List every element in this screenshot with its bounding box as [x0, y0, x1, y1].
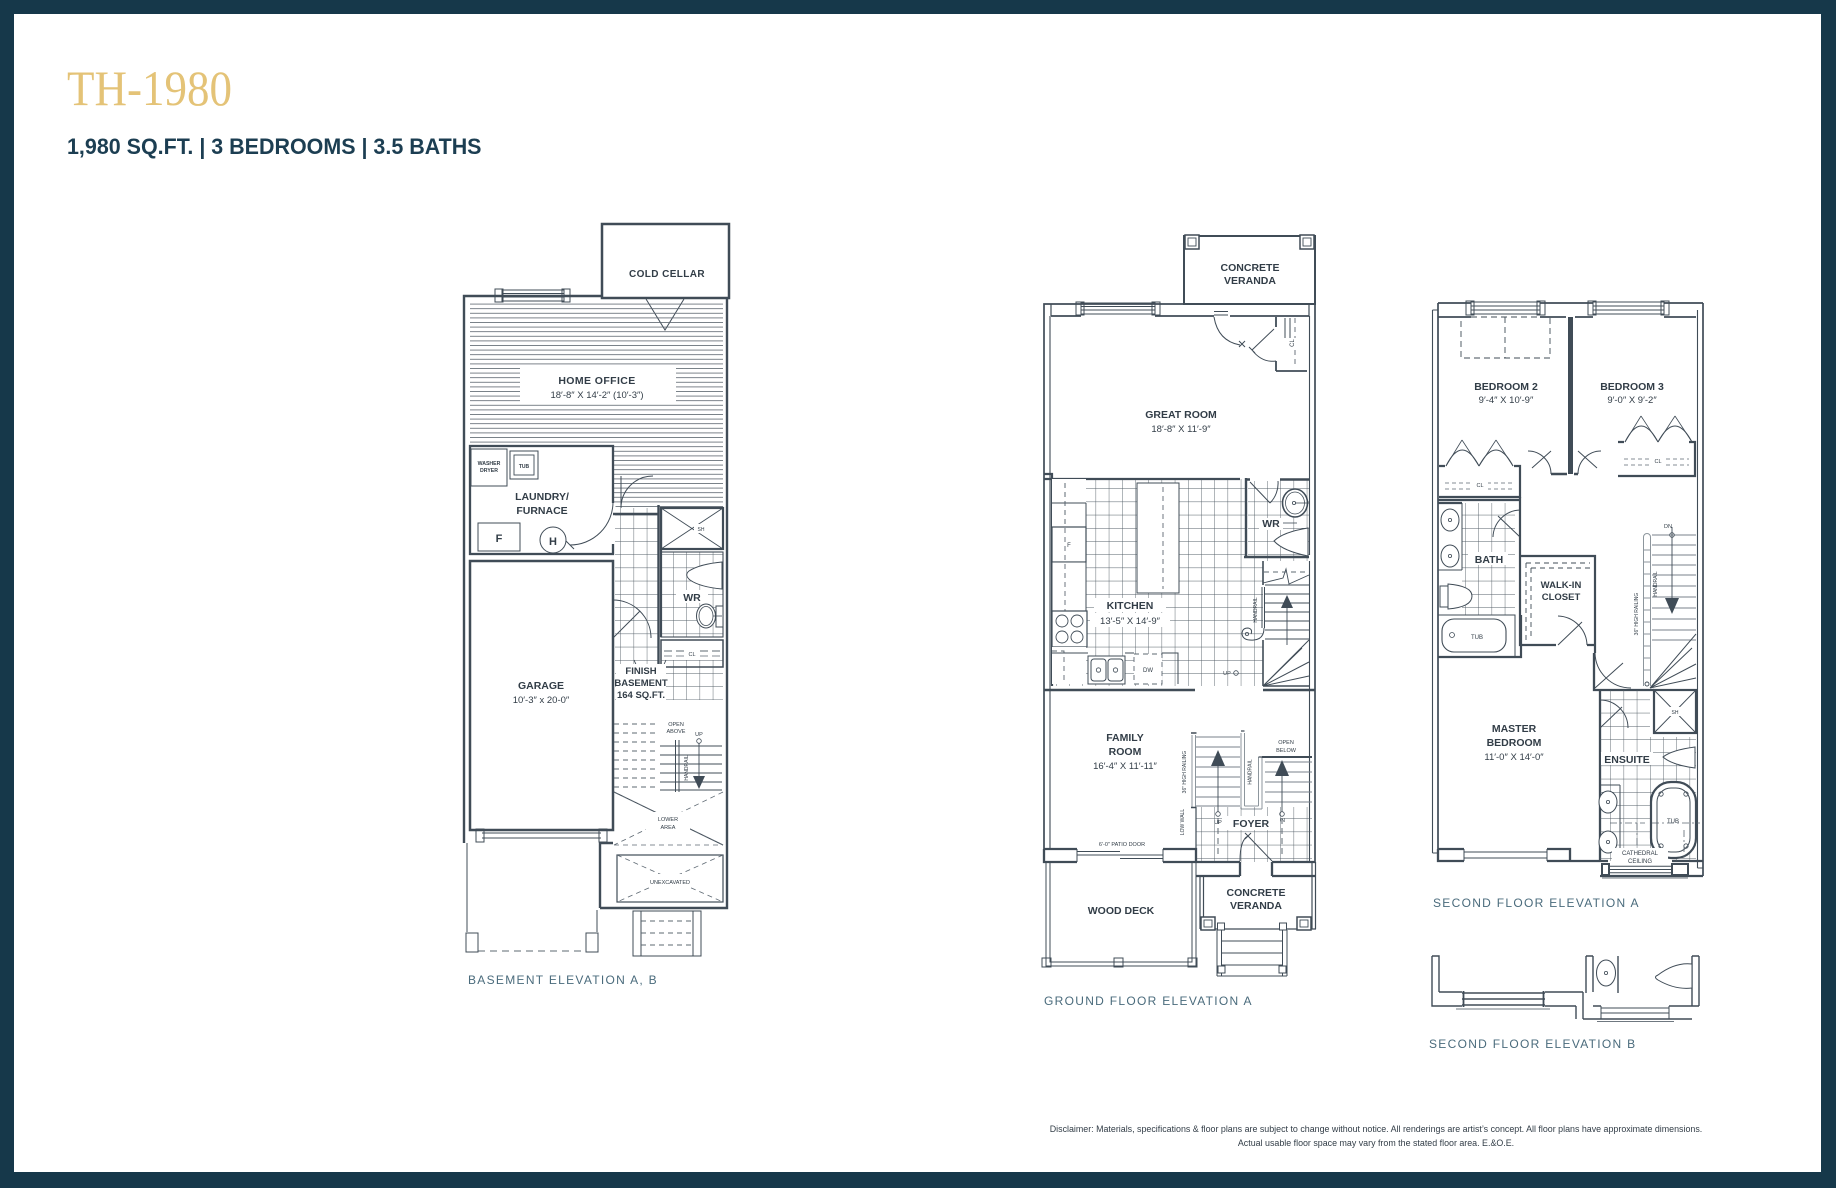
svg-text:CONCRETE: CONCRETE — [1227, 887, 1286, 899]
svg-text:H: H — [549, 536, 557, 548]
svg-text:COLD CELLAR: COLD CELLAR — [629, 269, 705, 280]
svg-text:AREA: AREA — [661, 825, 676, 831]
svg-text:10′-3″ x 20-0″: 10′-3″ x 20-0″ — [513, 695, 570, 706]
svg-text:TUB: TUB — [519, 464, 530, 470]
svg-text:WR: WR — [1262, 518, 1280, 530]
svg-text:DN: DN — [1664, 524, 1672, 530]
svg-text:FAMILY: FAMILY — [1106, 732, 1144, 744]
svg-text:F: F — [496, 533, 503, 545]
svg-text:TUB: TUB — [1471, 635, 1483, 641]
svg-text:CL: CL — [1476, 483, 1483, 489]
svg-text:13′-5″ X 14′-9″: 13′-5″ X 14′-9″ — [1100, 616, 1161, 627]
svg-text:9′-0″ X 9′-2″: 9′-0″ X 9′-2″ — [1607, 395, 1657, 406]
svg-text:BEDROOM: BEDROOM — [1487, 737, 1542, 749]
svg-text:DRYER: DRYER — [480, 468, 498, 474]
svg-text:VERANDA: VERANDA — [1230, 900, 1282, 912]
svg-text:18′-8″ X 14′-2″ (10′-3″): 18′-8″ X 14′-2″ (10′-3″) — [550, 390, 643, 401]
svg-text:HANDRAIL: HANDRAIL — [684, 755, 690, 781]
svg-text:FINISH: FINISH — [625, 666, 656, 677]
svg-text:36″ HIGH RAILING: 36″ HIGH RAILING — [1182, 751, 1188, 794]
svg-text:CL: CL — [1290, 339, 1296, 347]
svg-text:OPEN: OPEN — [1278, 740, 1294, 746]
svg-text:ROOM: ROOM — [1109, 746, 1142, 758]
svg-text:TUB: TUB — [1667, 819, 1679, 825]
svg-text:WALK-IN: WALK-IN — [1541, 580, 1582, 591]
svg-text:GREAT ROOM: GREAT ROOM — [1145, 409, 1217, 421]
svg-text:WOOD DECK: WOOD DECK — [1088, 905, 1155, 917]
svg-text:UP: UP — [1223, 671, 1231, 677]
svg-text:WR: WR — [683, 592, 701, 604]
svg-text:SH: SH — [698, 527, 705, 533]
svg-text:CEILING: CEILING — [1628, 859, 1652, 865]
svg-text:DW: DW — [1143, 668, 1153, 674]
svg-text:FURNACE: FURNACE — [516, 505, 567, 517]
svg-text:UP: UP — [695, 732, 703, 738]
svg-text:KITCHEN: KITCHEN — [1107, 600, 1154, 612]
svg-text:BELOW: BELOW — [1276, 748, 1297, 754]
svg-text:SECOND FLOOR ELEVATION A: SECOND FLOOR ELEVATION A — [1433, 896, 1640, 910]
svg-text:6′-0″ PATIO DOOR: 6′-0″ PATIO DOOR — [1099, 842, 1145, 848]
svg-text:HOME OFFICE: HOME OFFICE — [558, 375, 635, 387]
svg-text:SECOND FLOOR ELEVATION B: SECOND FLOOR ELEVATION B — [1429, 1037, 1636, 1051]
svg-text:MASTER: MASTER — [1492, 723, 1537, 735]
svg-text:UNEXCAVATED: UNEXCAVATED — [650, 880, 690, 886]
svg-text:18′-8″ X 11′-9″: 18′-8″ X 11′-9″ — [1151, 424, 1211, 435]
svg-text:GARAGE: GARAGE — [518, 680, 564, 692]
svg-text:WASHER: WASHER — [478, 461, 501, 467]
svg-text:LOW WALL: LOW WALL — [1180, 809, 1186, 835]
svg-text:BATH: BATH — [1475, 554, 1503, 566]
svg-text:HANDRAIL: HANDRAIL — [1248, 759, 1254, 785]
svg-text:16′-4″ X 11′-11″: 16′-4″ X 11′-11″ — [1093, 761, 1157, 772]
svg-text:Actual usable floor space may: Actual usable floor space may vary from … — [1238, 1138, 1514, 1148]
svg-text:BEDROOM 2: BEDROOM 2 — [1474, 381, 1538, 393]
svg-text:9′-4″ X 10′-9″: 9′-4″ X 10′-9″ — [1479, 395, 1534, 406]
svg-text:LOWER: LOWER — [658, 817, 678, 823]
svg-text:GROUND FLOOR ELEVATION A: GROUND FLOOR ELEVATION A — [1044, 994, 1253, 1008]
svg-text:ENSUITE: ENSUITE — [1604, 754, 1650, 766]
svg-text:11′-0″ X 14′-0″: 11′-0″ X 14′-0″ — [1484, 752, 1544, 763]
svg-text:HANDRAIL: HANDRAIL — [1253, 597, 1259, 623]
svg-text:BASEMENT ELEVATION A, B: BASEMENT ELEVATION A, B — [468, 973, 658, 987]
svg-text:F: F — [1067, 543, 1071, 549]
svg-text:LAUNDRY/: LAUNDRY/ — [515, 491, 569, 503]
svg-text:SH: SH — [1672, 710, 1679, 716]
svg-text:CL: CL — [1654, 459, 1661, 465]
svg-text:36″ HIGH RAILING: 36″ HIGH RAILING — [1634, 593, 1640, 636]
svg-text:ABOVE: ABOVE — [667, 729, 686, 735]
svg-text:BASEMENT: BASEMENT — [614, 678, 668, 689]
svg-text:CATHEDRAL: CATHEDRAL — [1622, 851, 1659, 857]
svg-text:BEDROOM 3: BEDROOM 3 — [1600, 381, 1664, 393]
svg-text:HANDRAIL: HANDRAIL — [1653, 571, 1659, 597]
svg-text:164 SQ.FT.: 164 SQ.FT. — [617, 690, 665, 701]
svg-text:OPEN: OPEN — [668, 722, 684, 728]
svg-text:CL: CL — [688, 652, 695, 658]
svg-text:VERANDA: VERANDA — [1224, 275, 1276, 287]
svg-text:CONCRETE: CONCRETE — [1221, 262, 1280, 274]
svg-text:Disclaimer: Materials, specifi: Disclaimer: Materials, specifications & … — [1050, 1124, 1702, 1134]
svg-text:CLOSET: CLOSET — [1542, 592, 1581, 603]
svg-text:FOYER: FOYER — [1233, 818, 1270, 830]
